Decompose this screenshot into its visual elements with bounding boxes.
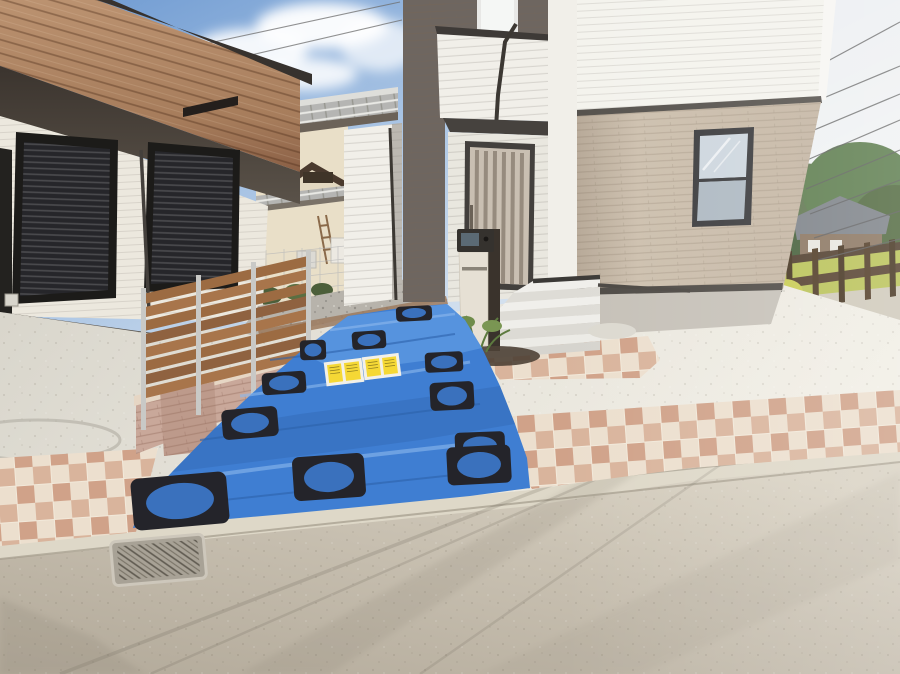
gable-sign: [303, 172, 333, 183]
warning-label-1: [324, 358, 365, 386]
tarp-weight: [221, 406, 279, 441]
warning-label-2: [362, 353, 402, 380]
intercom-screen: [461, 233, 479, 246]
intercom-camera: [484, 237, 489, 242]
label-sticker: [382, 356, 398, 375]
grate-mesh: [117, 539, 201, 580]
upper-window-glass: [481, 0, 514, 31]
tarp-weight: [425, 351, 464, 373]
label-sticker: [365, 358, 381, 377]
shrub-leaves: [482, 320, 502, 332]
property-photo: Street-level photo of a newly built ligh…: [0, 0, 900, 674]
door-handle: [470, 205, 473, 229]
window-shutter-1: [12, 132, 118, 304]
tarp-weight: [446, 444, 512, 485]
metal-post: [141, 288, 146, 430]
ladder-rung: [319, 225, 328, 226]
tarp-weight: [429, 381, 474, 411]
window-shutter-2: [144, 142, 240, 292]
shutter-slat-lines: [20, 142, 110, 296]
drainage-grate: [110, 534, 206, 586]
mail-slot: [462, 267, 487, 271]
wall-lamp: [5, 294, 18, 306]
tarp-weight: [261, 370, 306, 395]
tarp-weight: [300, 340, 327, 361]
shutter-slat-lines: [151, 151, 233, 284]
tarp-weight: [292, 453, 367, 502]
tarp-weight: [130, 471, 230, 531]
tarp-weight: [351, 330, 386, 350]
shutter-sliver: [0, 148, 12, 318]
overexposure-wash: [560, 0, 900, 674]
metal-post: [251, 262, 256, 400]
tarp-weight: [396, 305, 433, 322]
photo-canvas: [0, 0, 900, 674]
metal-post: [196, 275, 201, 415]
ladder-rung: [321, 237, 330, 238]
